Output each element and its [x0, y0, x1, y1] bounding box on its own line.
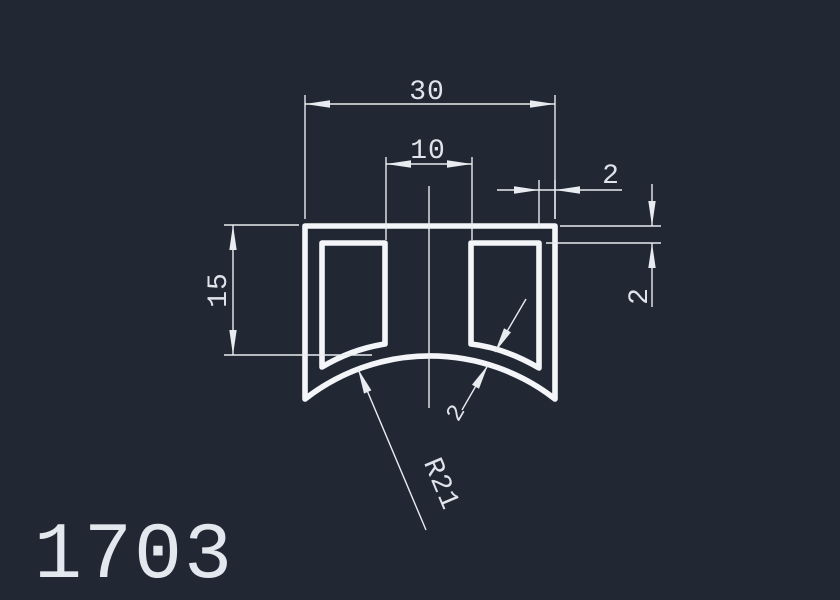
dimension-right-wall-2: 2: [497, 161, 622, 228]
arrowhead-down: [648, 201, 655, 226]
part-number-label: 1703: [34, 511, 234, 600]
dim-value-2-top-wall: 2: [625, 287, 656, 305]
arrowhead-left: [386, 160, 411, 167]
arrowhead-inward-right: [514, 186, 539, 193]
dimension-top-wall-2: 2: [546, 184, 661, 307]
dim-value-2-bottom-wall: 2: [442, 400, 473, 427]
arrowhead-up: [648, 243, 655, 268]
profile-right-slot: [471, 243, 539, 368]
dim-value-r21: R21: [415, 454, 464, 515]
arrowhead-left: [305, 100, 330, 107]
arrowhead-right: [447, 160, 472, 167]
profile-left-slot: [322, 243, 385, 367]
arrowhead-radius: [358, 369, 371, 394]
leader-line: [358, 369, 426, 530]
dim-value-30: 30: [409, 77, 445, 108]
cad-canvas: 30 10 2 2: [0, 0, 840, 600]
dim-value-10: 10: [410, 136, 446, 167]
dimension-radius-r21: R21: [358, 369, 465, 530]
arrowhead-up: [229, 225, 236, 250]
technical-drawing: 30 10 2 2: [0, 0, 840, 600]
arrowhead-right: [530, 100, 555, 107]
arrowhead-inward-left: [555, 186, 580, 193]
arrowhead-down: [229, 330, 236, 355]
dim-value-15: 15: [204, 272, 235, 308]
arrowhead-inward-up: [472, 365, 488, 389]
dim-value-2-right-wall: 2: [602, 161, 620, 192]
